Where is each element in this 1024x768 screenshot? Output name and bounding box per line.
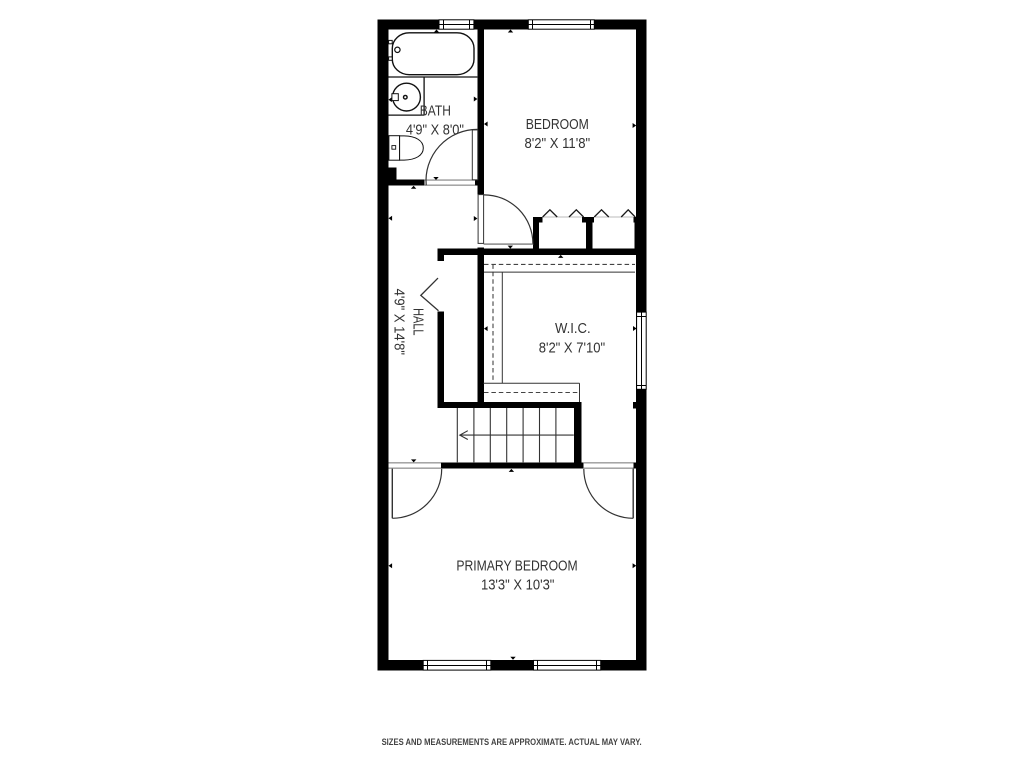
svg-text:13'3" X 10'3": 13'3" X 10'3" <box>481 576 555 593</box>
svg-text:W.I.C.: W.I.C. <box>555 319 591 336</box>
svg-text:4'9" X 14'8": 4'9" X 14'8" <box>391 289 408 356</box>
svg-text:8'2" X 11'8": 8'2" X 11'8" <box>525 135 591 152</box>
svg-text:HALL: HALL <box>410 308 427 335</box>
svg-text:BATH: BATH <box>420 102 451 118</box>
svg-text:SIZES AND MEASUREMENTS ARE APP: SIZES AND MEASUREMENTS ARE APPROXIMATE. … <box>382 738 642 748</box>
svg-text:4'9" X 8'0": 4'9" X 8'0" <box>406 122 464 138</box>
svg-text:BEDROOM: BEDROOM <box>526 116 589 132</box>
svg-text:8'2" X 7'10": 8'2" X 7'10" <box>539 339 605 356</box>
svg-text:PRIMARY BEDROOM: PRIMARY BEDROOM <box>456 557 577 573</box>
